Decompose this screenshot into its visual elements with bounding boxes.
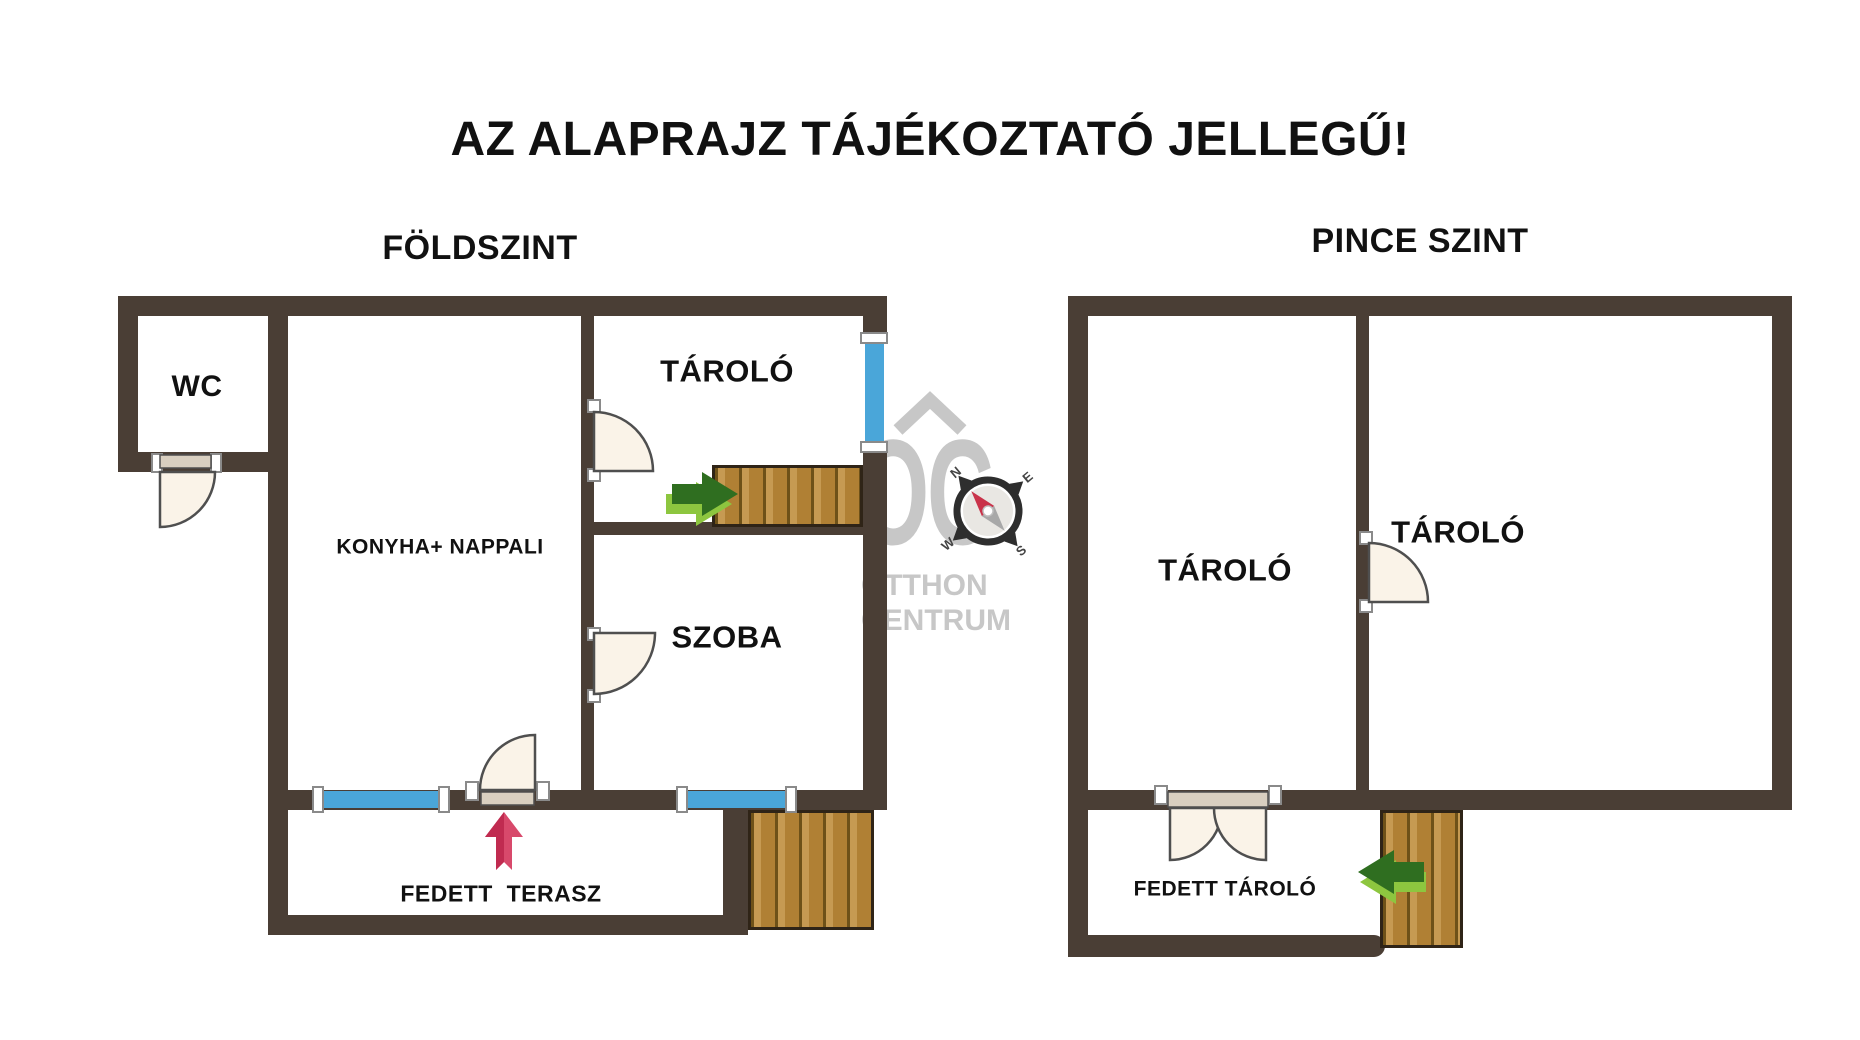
floor-label-ground: FÖLDSZINT (382, 231, 577, 265)
room-label-tarolo-basement-right: TÁROLÓ (1391, 517, 1525, 548)
window-sill-cap (676, 786, 688, 813)
basement-double-door (1148, 782, 1288, 868)
room-label-covered-storage: FEDETT TÁROLÓ (1134, 879, 1317, 900)
wc-door (150, 448, 236, 540)
room-label-wc: WC (172, 372, 223, 402)
basement-wall-right (1772, 296, 1792, 810)
compass-icon: N E S W (928, 451, 1048, 571)
room-label-covered-terrace: FEDETT TERASZ (400, 883, 601, 906)
stairs-up-arrow-icon (666, 470, 746, 530)
szoba-door (586, 628, 670, 718)
ground-window-taroloright (865, 344, 884, 441)
terrace-entry-arrow-icon (483, 810, 531, 880)
ground-window-terrace-left (323, 791, 440, 808)
ground-wall-right-lower (863, 441, 887, 810)
ground-wall-wc-right (268, 316, 288, 810)
floorplan-canvas: OC OTTHON CENTRUM N E S W AZ ALAPRAJZ TÁ… (0, 0, 1860, 1040)
ground-wall-top (118, 296, 887, 316)
room-label-tarolo-basement-left: TÁROLÓ (1158, 555, 1292, 586)
window-sill-cap (860, 332, 888, 344)
ground-wall-divider-vertical (581, 316, 594, 790)
window-sill-cap (860, 441, 888, 453)
terrace-wall-bottom (268, 915, 748, 935)
entrance-door (462, 728, 552, 812)
floor-label-basement: PINCE SZINT (1311, 224, 1528, 258)
room-label-tarolo-ground: TÁROLÓ (660, 356, 794, 387)
window-sill-cap (785, 786, 797, 813)
room-label-kitchen-living: KONYHA+ NAPPALI (336, 537, 543, 558)
terrace-wall-right (723, 810, 748, 935)
basement-annex-wall-bottom (1068, 935, 1385, 957)
basement-stairs-arrow-icon (1350, 850, 1430, 910)
disclaimer-title: AZ ALAPRAJZ TÁJÉKOZTATÓ JELLEGŰ! (450, 116, 1409, 164)
ground-window-szoba (687, 791, 787, 808)
basement-wall-top (1068, 296, 1792, 316)
compass-south-label: S (1013, 542, 1030, 559)
tarolo-door (586, 398, 668, 486)
room-label-szoba: SZOBA (672, 622, 783, 653)
window-sill-cap (438, 786, 450, 813)
window-sill-cap (312, 786, 324, 813)
ground-stairs-terrace (748, 810, 874, 930)
basement-wall-left (1068, 296, 1088, 810)
ground-wall-left-upper (118, 296, 138, 472)
